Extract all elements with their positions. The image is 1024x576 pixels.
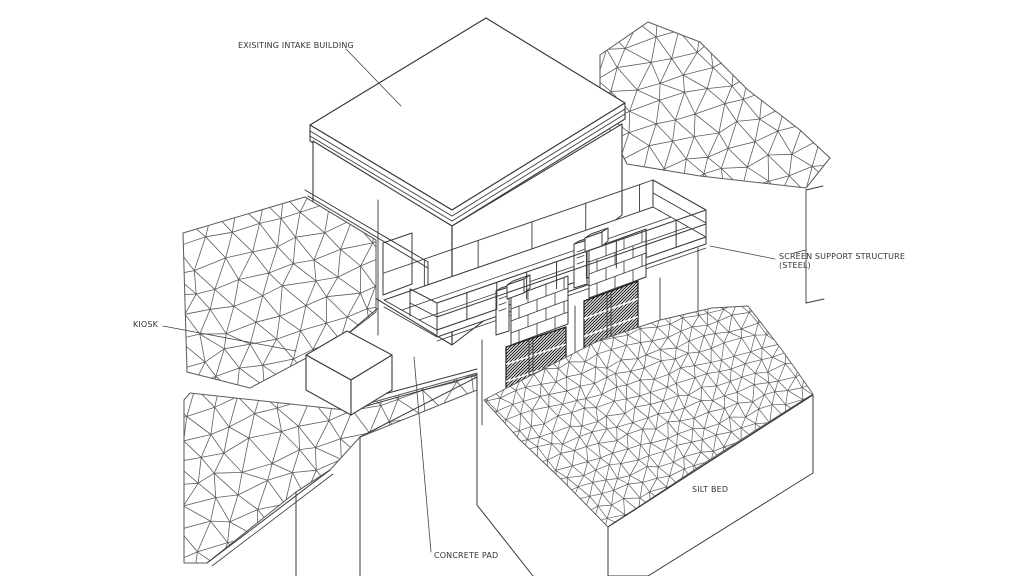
label-silt-bed: SILT BED: [692, 485, 728, 494]
label-screen-support-line2: (STEEL): [779, 261, 905, 270]
label-concrete-pad: CONCRETE PAD: [434, 551, 498, 560]
label-existing-intake-building: EXISITING INTAKE BUILDING: [238, 41, 354, 50]
label-kiosk: KIOSK: [133, 320, 158, 329]
isometric-drawing: EXISITING INTAKE BUILDING KIOSK SCREEN S…: [0, 0, 1024, 576]
drawing-canvas: [0, 0, 1024, 576]
label-screen-support-line1: SCREEN SUPPORT STRUCTURE: [779, 252, 905, 261]
label-screen-support-structure: SCREEN SUPPORT STRUCTURE (STEEL): [779, 252, 905, 270]
